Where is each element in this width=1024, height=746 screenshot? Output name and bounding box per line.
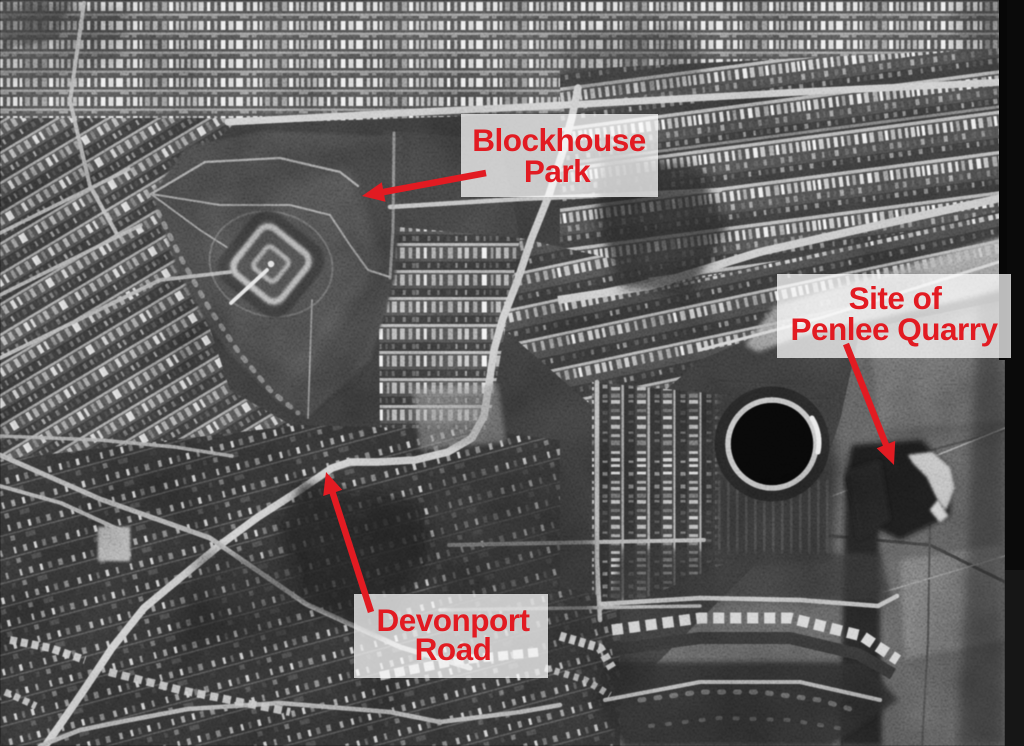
svg-text:Road: Road [415,631,492,667]
svg-text:Penlee Quarry: Penlee Quarry [790,311,998,347]
svg-text:Park: Park [524,153,591,189]
